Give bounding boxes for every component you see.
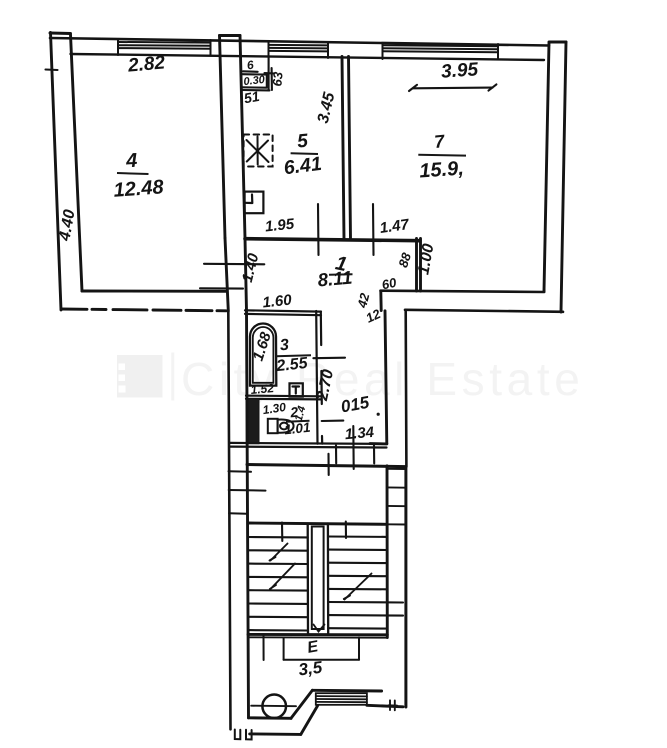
svg-text:6.41: 6.41 — [283, 153, 323, 179]
svg-text:2.82: 2.82 — [126, 52, 166, 76]
svg-text:3.95: 3.95 — [440, 59, 479, 83]
svg-text:1.95: 1.95 — [264, 215, 295, 235]
svg-text:8.11: 8.11 — [317, 267, 353, 291]
svg-text:0.30: 0.30 — [243, 74, 266, 88]
svg-text:City Real Estate: City Real Estate — [181, 353, 584, 405]
svg-text:1.60: 1.60 — [262, 291, 293, 311]
svg-text:63: 63 — [269, 70, 285, 86]
svg-text:12.48: 12.48 — [113, 176, 165, 201]
svg-text:51: 51 — [243, 88, 261, 106]
svg-text:4: 4 — [125, 150, 138, 173]
svg-text:2.55: 2.55 — [275, 355, 310, 375]
svg-text:1.34: 1.34 — [344, 424, 375, 444]
svg-text:1.01: 1.01 — [283, 420, 311, 438]
svg-text:15.9,: 15.9, — [419, 157, 465, 182]
svg-text:3,5: 3,5 — [297, 658, 323, 680]
svg-text:1.52: 1.52 — [250, 381, 275, 397]
svg-text:3: 3 — [279, 337, 289, 355]
